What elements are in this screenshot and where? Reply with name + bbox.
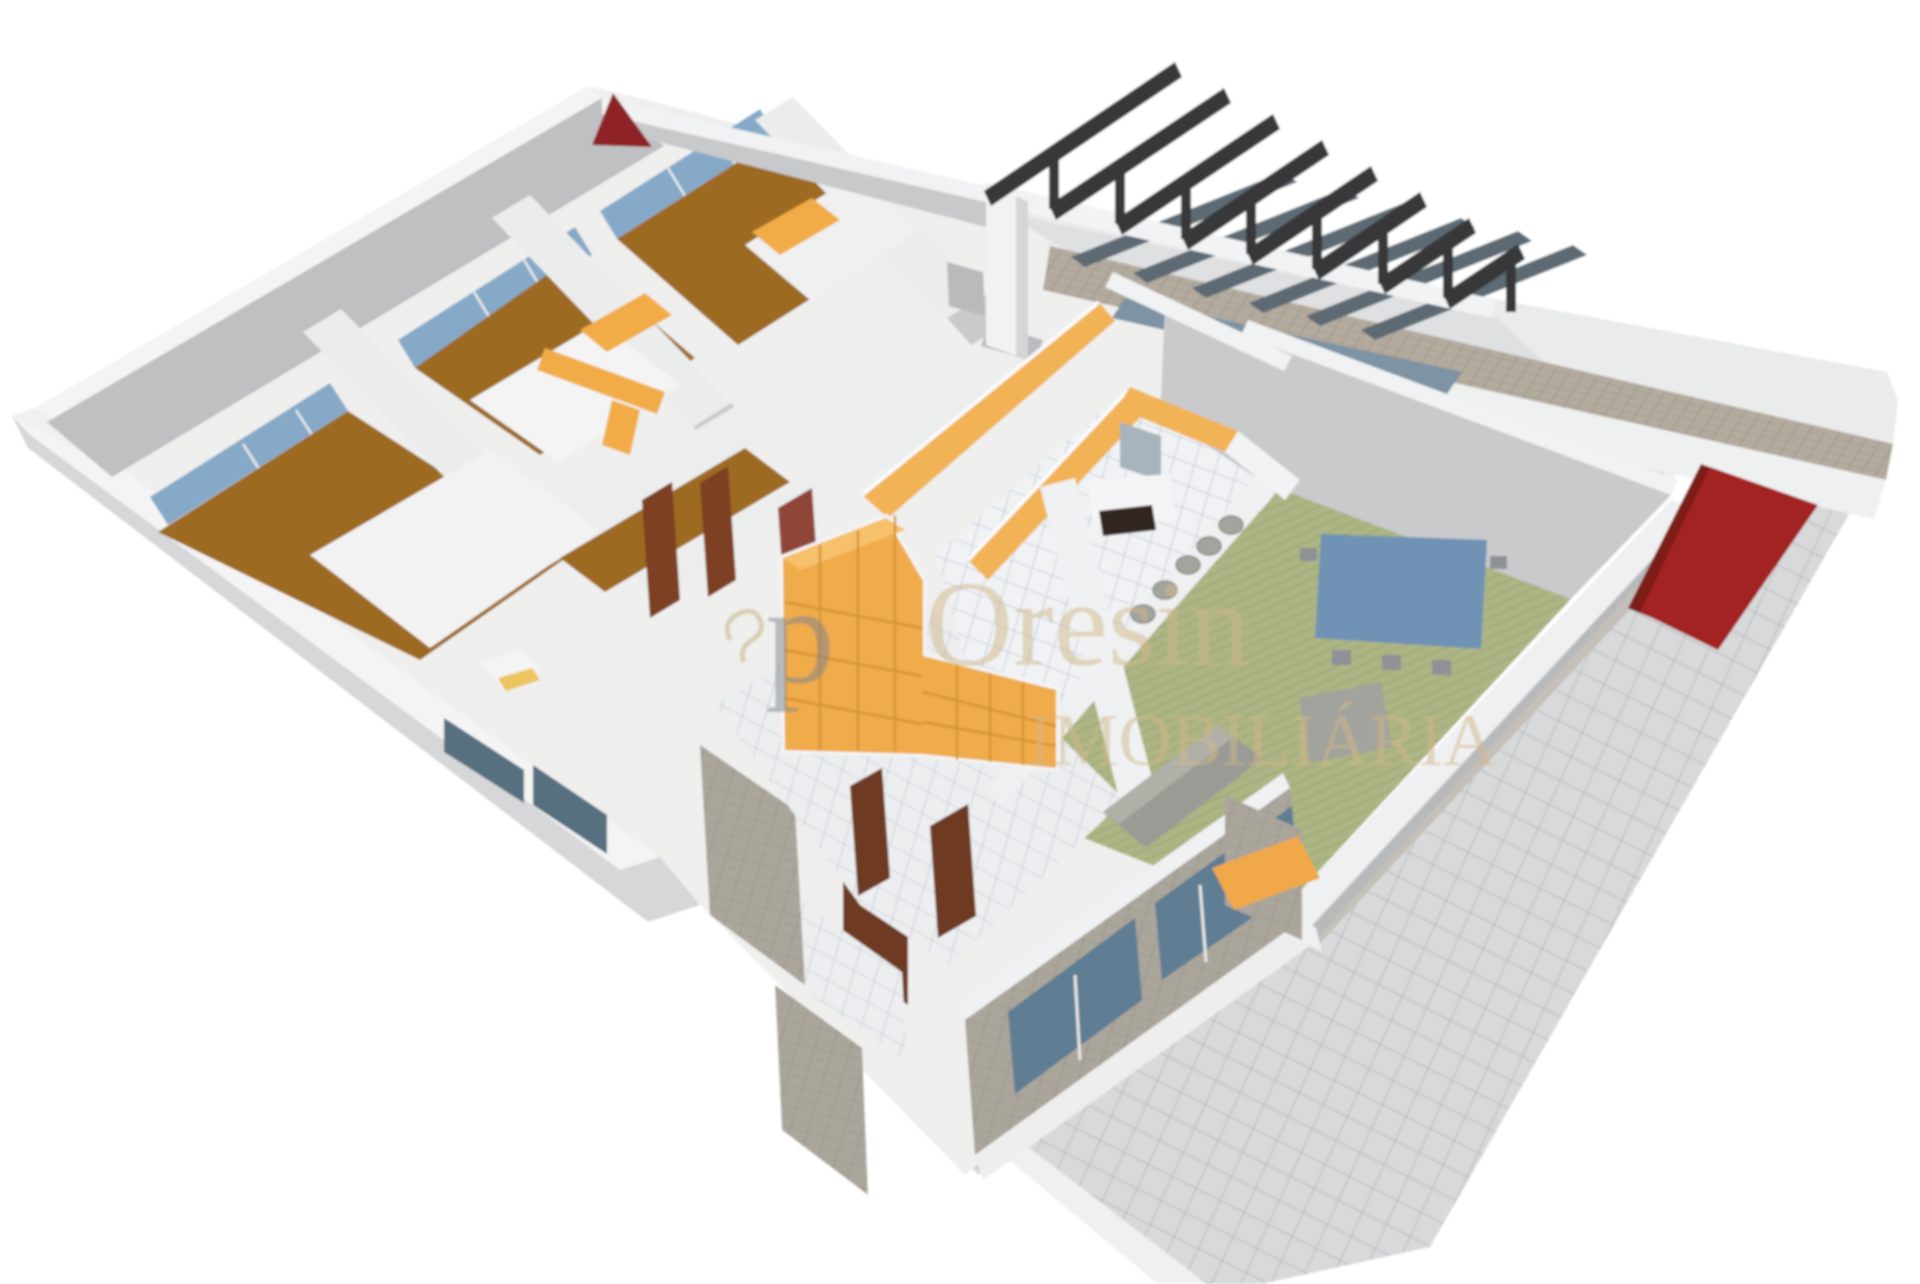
svg-text:p: p [765, 558, 835, 713]
svg-text:IMOBILIÁRIA: IMOBILIÁRIA [1028, 700, 1497, 782]
svg-text:Oresin: Oresin [925, 557, 1250, 692]
